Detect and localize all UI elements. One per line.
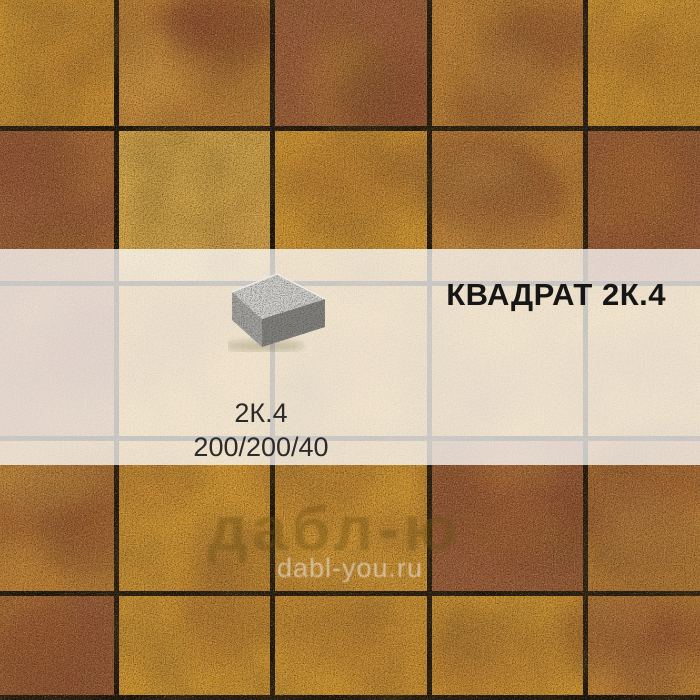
paver-block-3d-image — [228, 270, 330, 352]
product-code: 2К.4 — [135, 398, 387, 429]
product-photo-card: КВАДРАТ 2К.4 2К.4 200/200/40 дабл-ю dabl… — [0, 0, 700, 700]
product-title: КВАДРАТ 2К.4 — [446, 277, 666, 313]
watermark-site-url: dabl-you.ru — [0, 553, 700, 584]
product-dimensions: 200/200/40 — [135, 432, 387, 463]
